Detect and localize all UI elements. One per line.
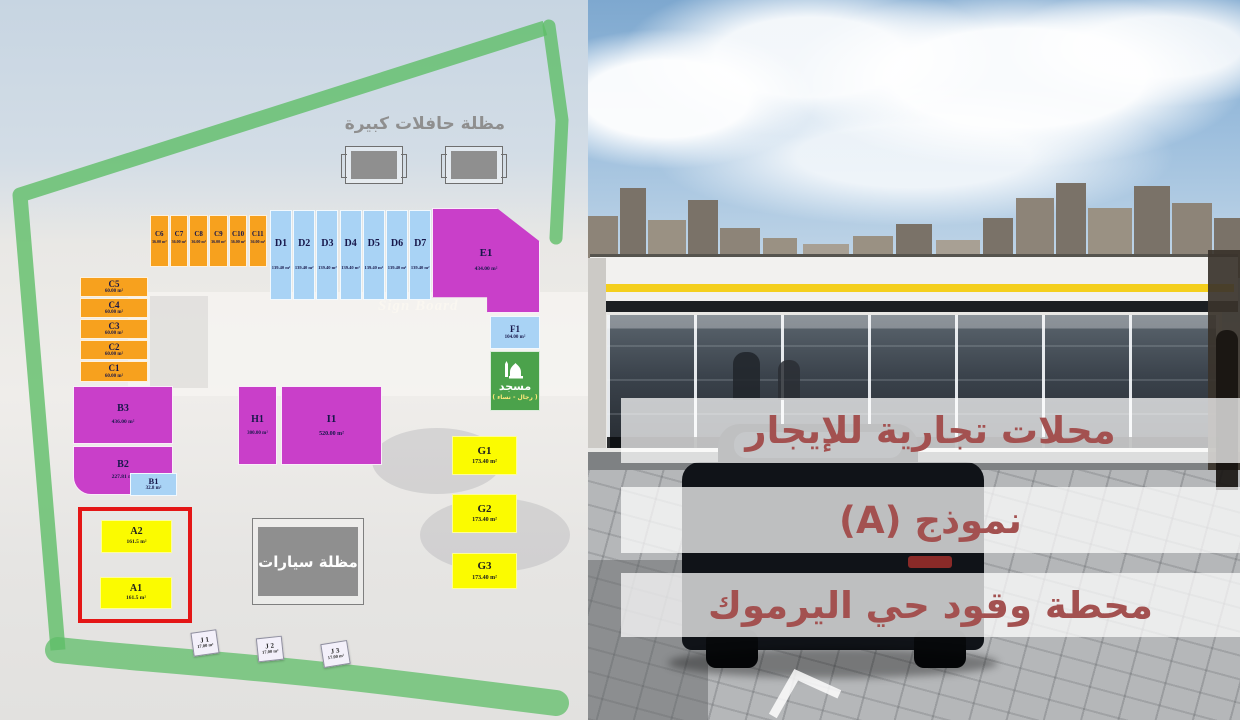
overlay-band-shops-for-rent: محلات تجارية للإيجار bbox=[621, 398, 1240, 463]
unit-B1: B132.8 m² bbox=[130, 473, 177, 496]
unit-area-label: 36.00 m² bbox=[231, 240, 246, 244]
unit-C5: C560.00 m² bbox=[80, 277, 148, 297]
unit-id-label: G3 bbox=[477, 561, 491, 573]
unit-id-label: C9 bbox=[214, 231, 223, 238]
car-shelter-block: مظلة سيارات bbox=[258, 527, 358, 596]
unit-area-label: 300.00 m² bbox=[247, 431, 268, 436]
person-silhouette bbox=[733, 352, 760, 400]
unit-C9: C936.00 m² bbox=[209, 215, 228, 267]
unit-C11: C1136.00 m² bbox=[249, 215, 268, 267]
unit-id-label: C2 bbox=[109, 343, 120, 352]
unit-area-label: 60.00 m² bbox=[105, 310, 123, 315]
unit-area-label: 17.00 m² bbox=[197, 643, 214, 650]
unit-area-label: 60.00 m² bbox=[105, 352, 123, 357]
unit-id-label: E1 bbox=[480, 248, 493, 260]
unit-area-label: 60.00 m² bbox=[105, 289, 123, 294]
overlay-text-line3: محطة وقود حي اليرموك bbox=[708, 584, 1153, 627]
unit-G2: G2173.40 m² bbox=[452, 494, 517, 533]
unit-id-label: D2 bbox=[298, 239, 310, 250]
unit-id-label: C3 bbox=[109, 322, 120, 331]
unit-id-label: D4 bbox=[344, 239, 356, 250]
unit-area-label: 36.00 m² bbox=[211, 240, 226, 244]
unit-G3: G3173.40 m² bbox=[452, 553, 517, 589]
unit-id-label: D5 bbox=[368, 239, 380, 250]
car-shelter-label: مظلة سيارات bbox=[258, 553, 358, 571]
station-canopy bbox=[590, 257, 1238, 302]
unit-C1: C160.00 m² bbox=[80, 361, 148, 382]
unit-id-label: C5 bbox=[109, 280, 120, 289]
unit-J2: J 217.00 m² bbox=[256, 636, 284, 663]
unit-area-label: 436.00 m² bbox=[112, 420, 135, 426]
unit-area-label: 139.40 m² bbox=[388, 266, 407, 271]
bus-canopy-fill bbox=[451, 151, 497, 179]
unit-id-label: D3 bbox=[321, 239, 333, 250]
bus-canopy-fill bbox=[351, 151, 397, 179]
unit-id-label: D1 bbox=[275, 239, 287, 250]
bus-canopy-icon bbox=[445, 146, 503, 184]
unit-id-label: C8 bbox=[194, 231, 203, 238]
unit-area-label: 36.00 m² bbox=[172, 240, 187, 244]
unit-id-label: C7 bbox=[175, 231, 184, 238]
unit-area-label: 434.00 m² bbox=[475, 267, 498, 273]
unit-area-label: 36.00 m² bbox=[250, 240, 265, 244]
unit-area-label: 173.40 m² bbox=[472, 459, 497, 465]
unit-area-label: 139.40 m² bbox=[295, 266, 314, 271]
unit-area-label: 139.40 m² bbox=[411, 266, 430, 271]
faded-photo-tower bbox=[150, 296, 208, 388]
unit-id-label: C1 bbox=[109, 364, 120, 373]
unit-B3: B3436.00 m² bbox=[73, 386, 173, 444]
overlay-text-line1: محلات تجارية للإيجار bbox=[745, 409, 1115, 452]
unit-F1: F1104.00 m² bbox=[490, 316, 540, 349]
unit-D5: D5139.40 m² bbox=[363, 210, 385, 300]
car-taillight bbox=[908, 556, 952, 568]
unit-C7: C736.00 m² bbox=[170, 215, 189, 267]
unit-id-label: B1 bbox=[149, 477, 159, 486]
mosque-label: مسجد bbox=[499, 380, 531, 393]
unit-area-label: 60.00 m² bbox=[105, 331, 123, 336]
unit-area-label: 173.40 m² bbox=[472, 517, 497, 523]
unit-C3: C360.00 m² bbox=[80, 319, 148, 339]
unit-area-label: 104.00 m² bbox=[505, 335, 526, 340]
unit-D3: D3139.40 m² bbox=[316, 210, 338, 300]
unit-id-label: G1 bbox=[477, 446, 491, 458]
unit-id-label: B3 bbox=[117, 404, 129, 415]
unit-area-label: 139.40 m² bbox=[341, 266, 360, 271]
mosque-icon bbox=[504, 361, 526, 379]
overlay-band-model-a: نموذج (A) bbox=[621, 487, 1240, 553]
photo-panel: محلات تجارية للإيجار نموذج (A) محطة وقود… bbox=[588, 0, 1240, 720]
unit-area-label: 32.8 m² bbox=[146, 486, 162, 491]
unit-id-label: H1 bbox=[251, 415, 264, 426]
unit-id-label: C6 bbox=[155, 231, 164, 238]
unit-area-label: 17.00 m² bbox=[262, 649, 279, 655]
unit-D4: D4139.40 m² bbox=[340, 210, 362, 300]
unit-area-label: 60.00 m² bbox=[105, 374, 123, 379]
bus-shelter-label: مظلة حافلات كبيرة bbox=[300, 114, 505, 134]
unit-id-label: G2 bbox=[477, 504, 491, 516]
unit-area-label: 36.00 m² bbox=[152, 240, 167, 244]
unit-D6: D6139.40 m² bbox=[386, 210, 408, 300]
left-pillar bbox=[588, 258, 606, 458]
unit-id-label: C11 bbox=[252, 231, 264, 238]
unit-J1: J 117.00 m² bbox=[190, 629, 219, 656]
unit-id-label: B2 bbox=[117, 460, 129, 471]
unit-I1: I1520.00 m² bbox=[281, 386, 382, 465]
unit-id-label: F1 bbox=[510, 325, 520, 334]
canopy-yellow-stripe bbox=[594, 284, 1234, 292]
sign-board-text: Sign Board bbox=[378, 298, 458, 315]
unit-id-label: C4 bbox=[109, 301, 120, 310]
mosque-sublabel: ( رجال - نساء ) bbox=[492, 394, 537, 401]
mosque-block: مسجد ( رجال - نساء ) bbox=[490, 351, 540, 411]
unit-C2: C260.00 m² bbox=[80, 340, 148, 360]
unit-C6: C636.00 m² bbox=[150, 215, 169, 267]
unit-C8: C836.00 m² bbox=[189, 215, 208, 267]
person-silhouette bbox=[778, 360, 800, 400]
unit-id-label: D6 bbox=[391, 239, 403, 250]
unit-area-label: 520.00 m² bbox=[319, 431, 344, 437]
canopy-dark-band bbox=[590, 301, 1238, 312]
overlay-band-station-name: محطة وقود حي اليرموك bbox=[621, 573, 1240, 637]
unit-area-label: 17.00 m² bbox=[328, 654, 345, 661]
unit-id-label: D7 bbox=[414, 239, 426, 250]
unit-area-label: 173.40 m² bbox=[472, 575, 497, 581]
unit-H1: H1300.00 m² bbox=[238, 386, 277, 465]
unit-area-label: 139.40 m² bbox=[318, 266, 337, 271]
unit-D2: D2139.40 m² bbox=[293, 210, 315, 300]
unit-D7: D7139.40 m² bbox=[409, 210, 431, 300]
model-a-highlight-border bbox=[78, 507, 192, 623]
unit-E1: E1434.00 m² bbox=[432, 208, 540, 313]
site-plan-panel: Sign Board مظلة حافلات كبيرة C560.00 m²C… bbox=[0, 0, 588, 720]
unit-area-label: 139.40 m² bbox=[272, 266, 291, 271]
unit-C10: C1036.00 m² bbox=[229, 215, 248, 267]
unit-area-label: 36.00 m² bbox=[191, 240, 206, 244]
unit-G1: G1173.40 m² bbox=[452, 436, 517, 475]
unit-J3: J 317.00 m² bbox=[320, 640, 350, 668]
unit-id-label: C10 bbox=[232, 231, 244, 238]
unit-D1: D1139.40 m² bbox=[270, 210, 292, 300]
unit-id-label: I1 bbox=[327, 414, 337, 426]
unit-area-label: 139.40 m² bbox=[364, 266, 383, 271]
flyer-image: Sign Board مظلة حافلات كبيرة C560.00 m²C… bbox=[0, 0, 1240, 720]
unit-C4: C460.00 m² bbox=[80, 298, 148, 318]
overlay-text-line2: نموذج (A) bbox=[839, 499, 1022, 542]
bus-canopy-icon bbox=[345, 146, 403, 184]
